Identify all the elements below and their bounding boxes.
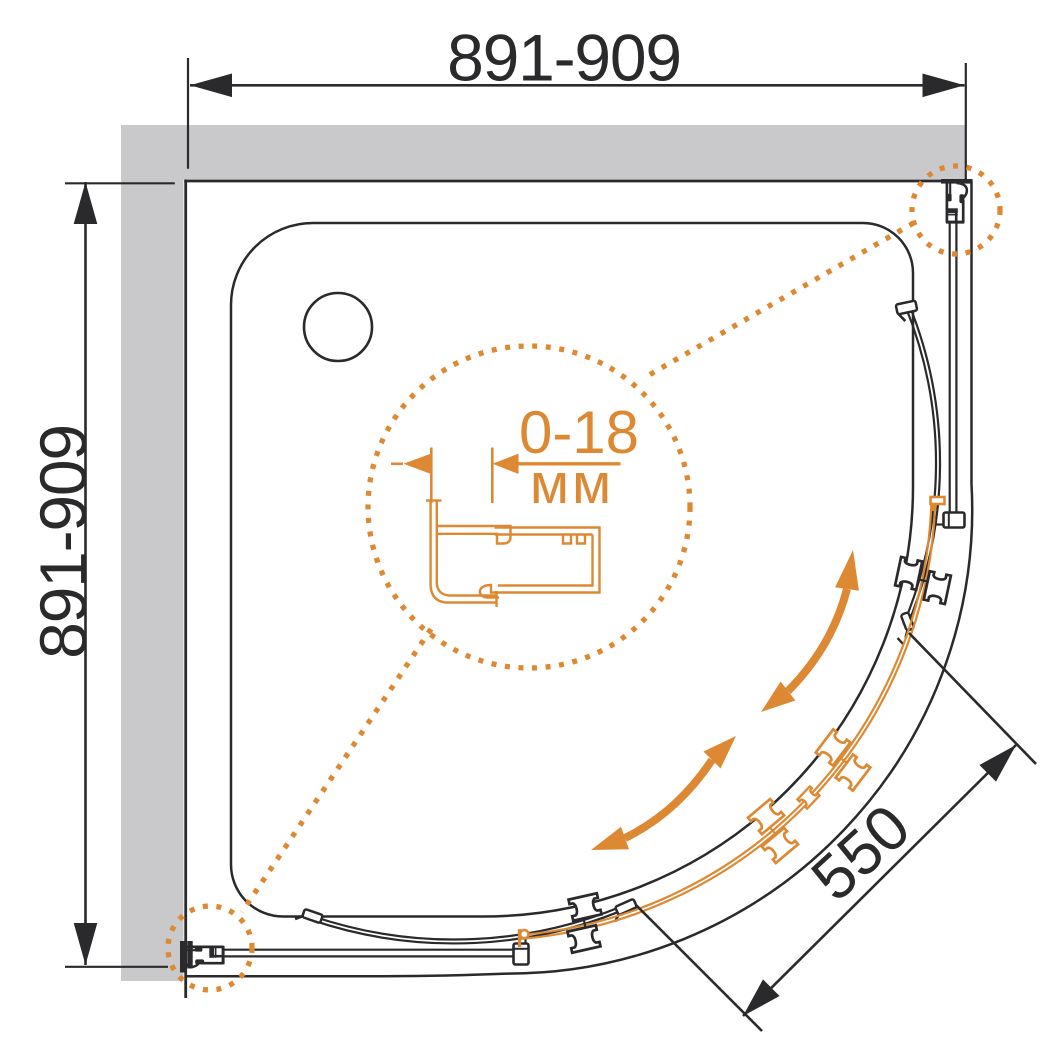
svg-text:мм: мм: [530, 452, 614, 516]
svg-text:891-909: 891-909: [26, 425, 100, 659]
svg-text:891-909: 891-909: [447, 21, 681, 95]
